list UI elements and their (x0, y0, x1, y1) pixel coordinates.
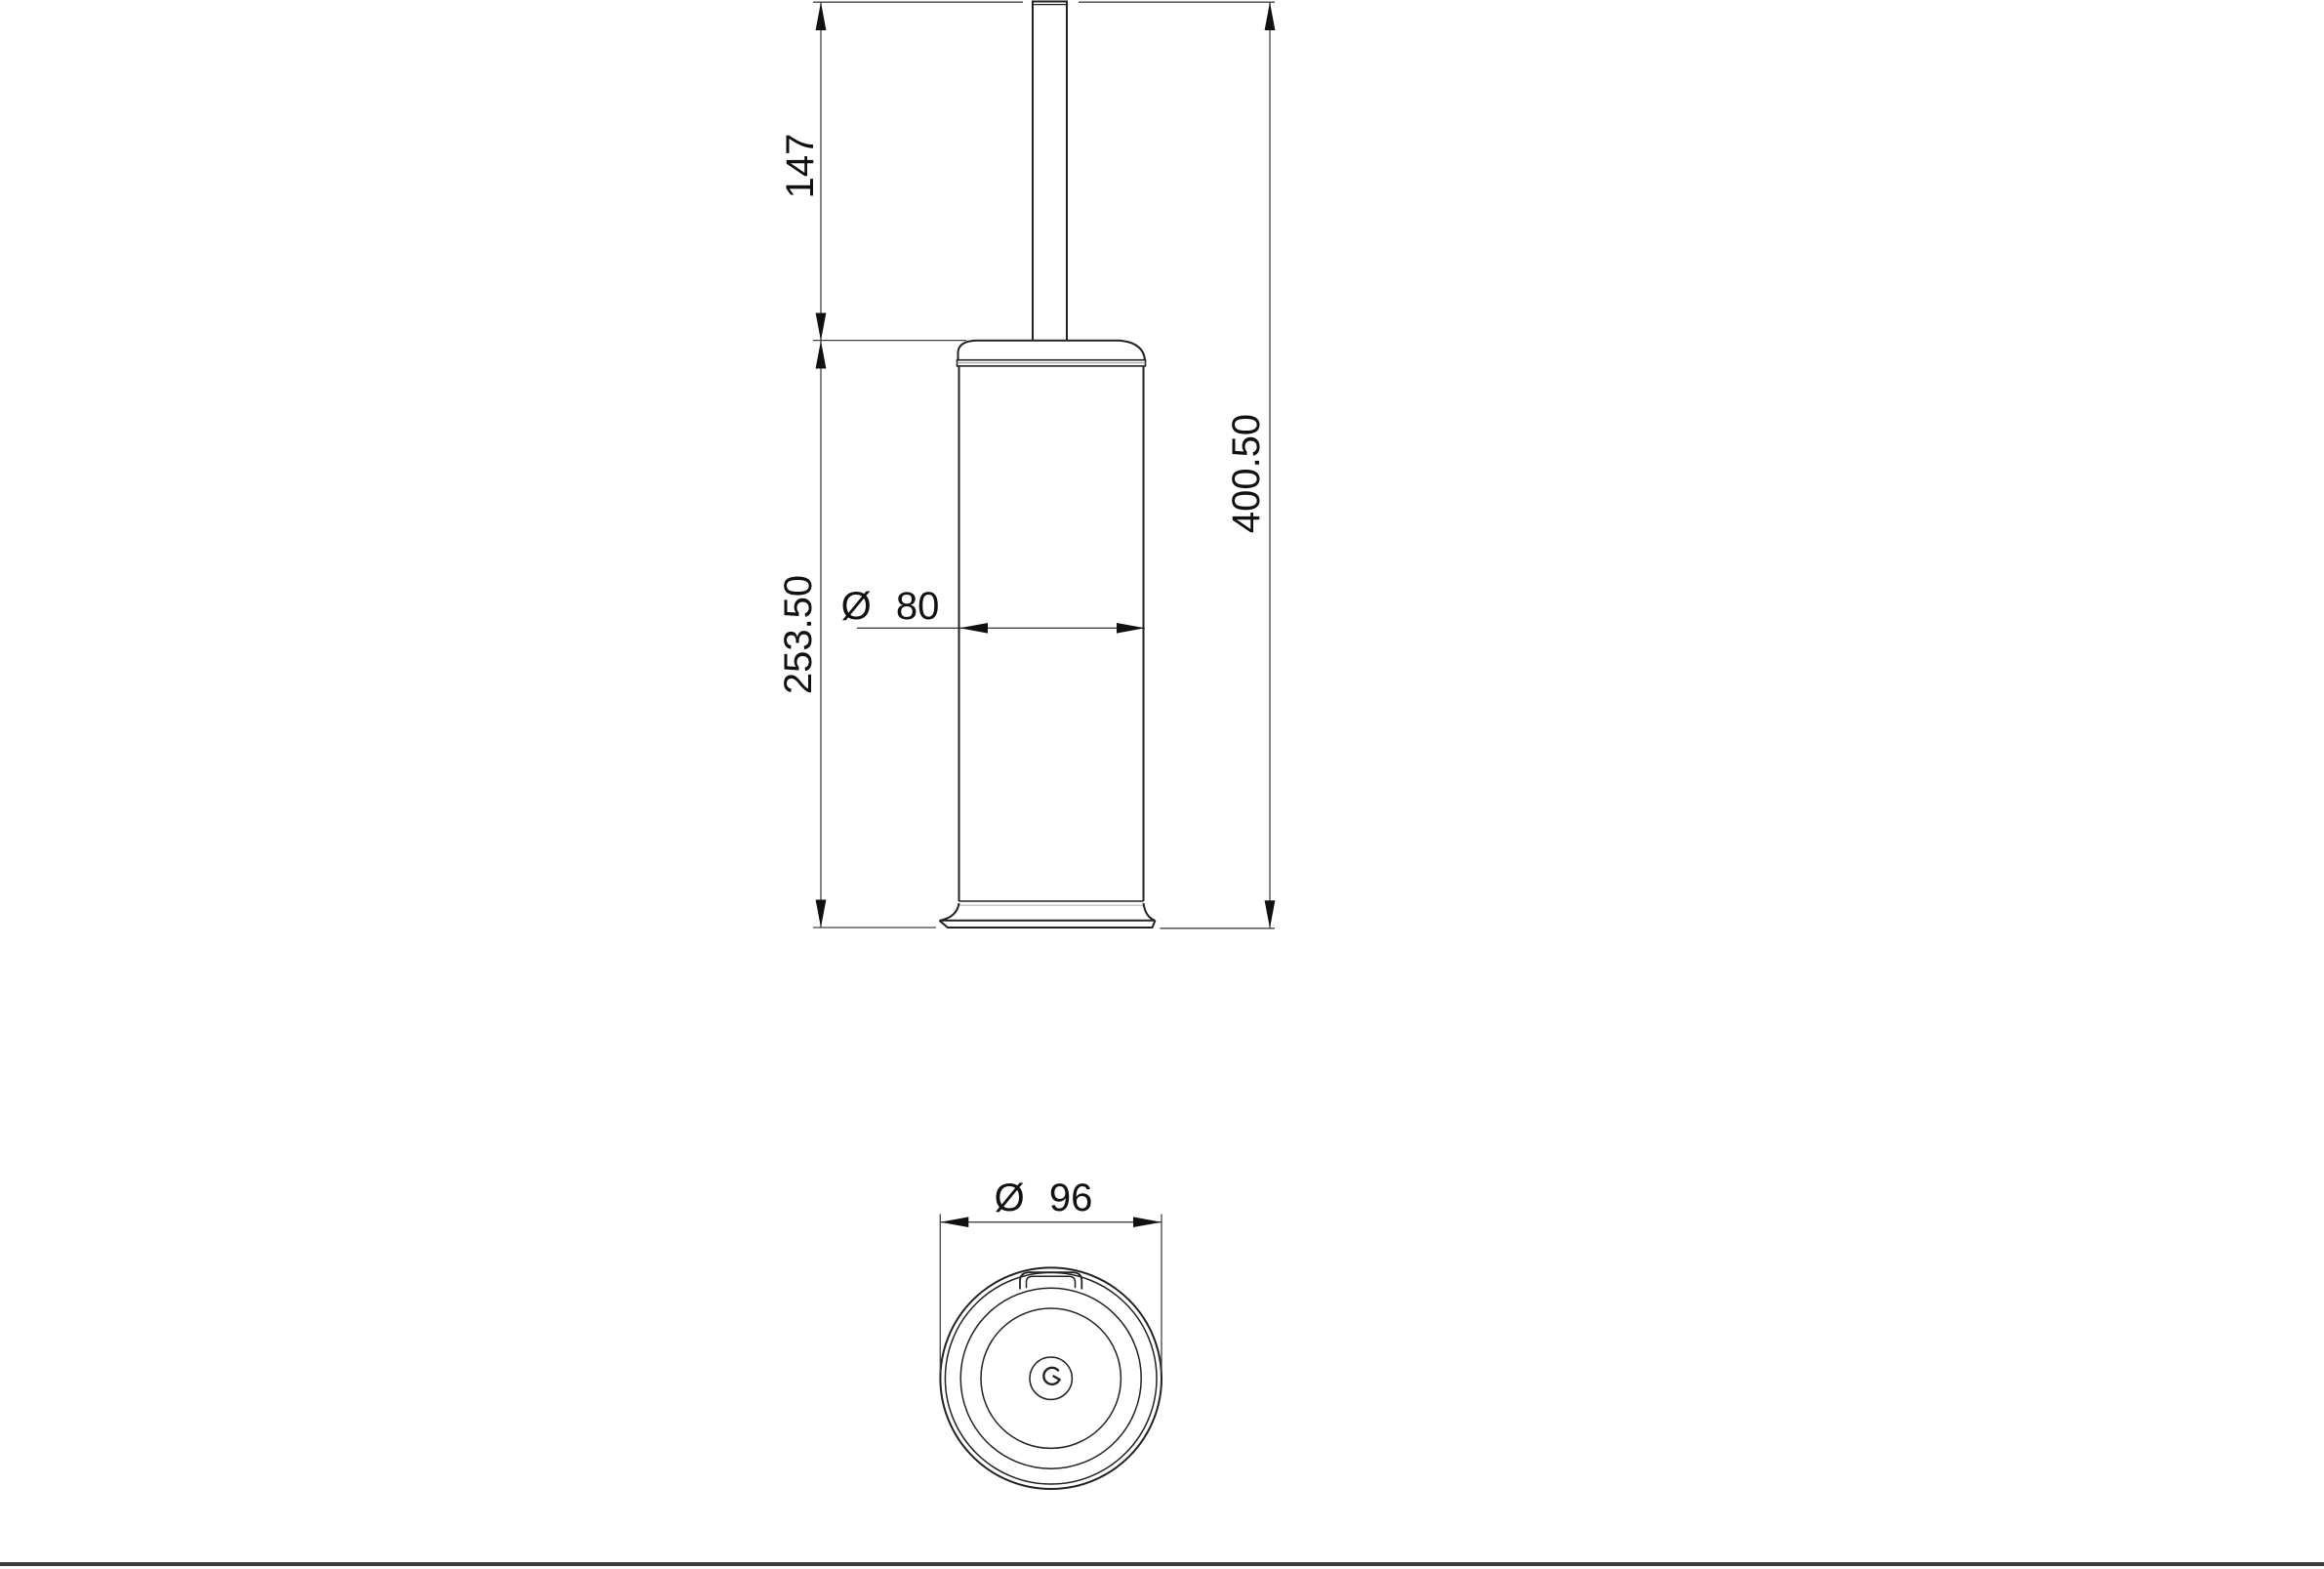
inner-circle (981, 1308, 1121, 1448)
dim-total-height-label: 400.50 (1227, 414, 1266, 533)
arrow-left-icon (959, 623, 988, 634)
middle-circle (960, 1288, 1141, 1468)
technical-drawing-canvas: 147 253.50 400.50 Ø 80 Ø 96 (0, 0, 2324, 1569)
handle-circle (1030, 1357, 1072, 1399)
arrow-down-icon (1265, 900, 1276, 929)
dim-body-diameter-label: Ø 80 (841, 587, 940, 626)
toilet-brush-drawing (0, 0, 2324, 1569)
handle-rod (1033, 2, 1067, 344)
dim-body-height-label: 253.50 (779, 575, 818, 694)
bottom-view (940, 1267, 1162, 1489)
lid-outline (958, 341, 1146, 360)
arrow-up-icon (1265, 2, 1276, 30)
body-walls (959, 366, 1144, 901)
outer-inner-circle (945, 1272, 1157, 1484)
dim-handle-height-label: 147 (781, 134, 820, 199)
arrow-left-icon (940, 1217, 968, 1227)
arrow-up-icon (816, 341, 827, 369)
outer-circle (940, 1267, 1162, 1489)
center-detail-mark (1043, 1368, 1059, 1384)
dim-base-diameter-label: Ø 96 (995, 1178, 1093, 1218)
base-plate (940, 921, 1156, 928)
lid-tab-inner (1027, 1276, 1076, 1288)
arrow-up-icon (816, 2, 827, 30)
arrow-right-icon (1133, 1217, 1162, 1227)
bottom-view-dimensions (940, 1215, 1162, 1374)
front-view (940, 2, 1156, 929)
bottom-border-rule (0, 1562, 2324, 1566)
arrow-down-icon (816, 313, 827, 342)
arrow-down-icon (816, 900, 827, 929)
arrow-right-icon (1117, 623, 1145, 634)
